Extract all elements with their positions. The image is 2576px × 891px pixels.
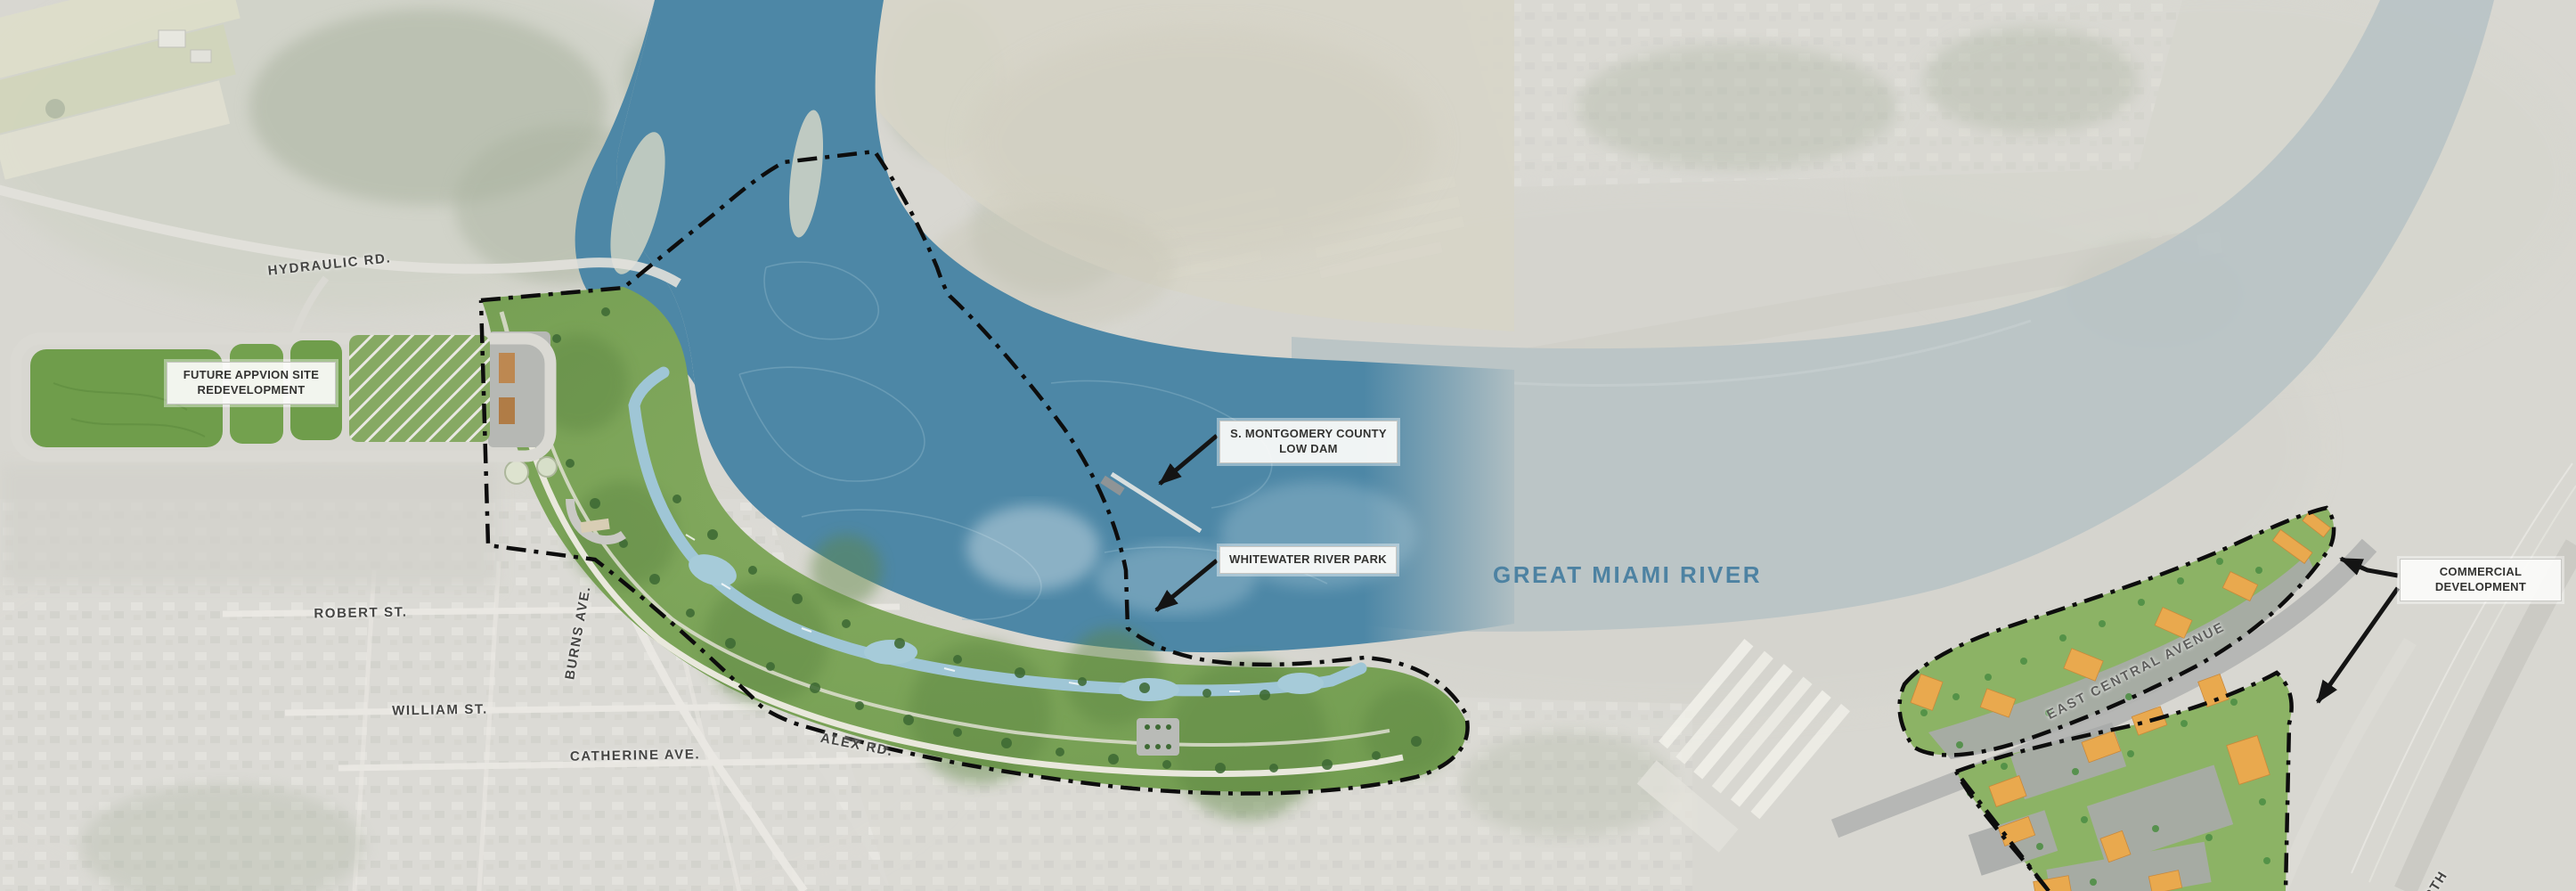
street-label-catherine-ave: CATHERINE AVE.	[570, 747, 701, 764]
callout-whitewater-river-park: WHITEWATER RIVER PARK	[1219, 546, 1397, 574]
street-label-robert-st: ROBERT ST.	[314, 605, 407, 622]
street-label-william-st: WILLIAM ST.	[392, 702, 488, 719]
callout-commercial-development: COMMERCIAL DEVELOPMENT	[2400, 559, 2562, 601]
site-plan-map: HYDRAULIC RD. ROBERT ST. WILLIAM ST. BUR…	[0, 0, 2576, 891]
callout-low-dam: S. MONTGOMERY COUNTY LOW DAM	[1219, 421, 1398, 463]
callout-future-appvion-site: FUTURE APPVION SITE REDEVELOPMENT	[167, 362, 336, 405]
river-name-label: GREAT MIAMI RIVER	[1493, 561, 1762, 589]
